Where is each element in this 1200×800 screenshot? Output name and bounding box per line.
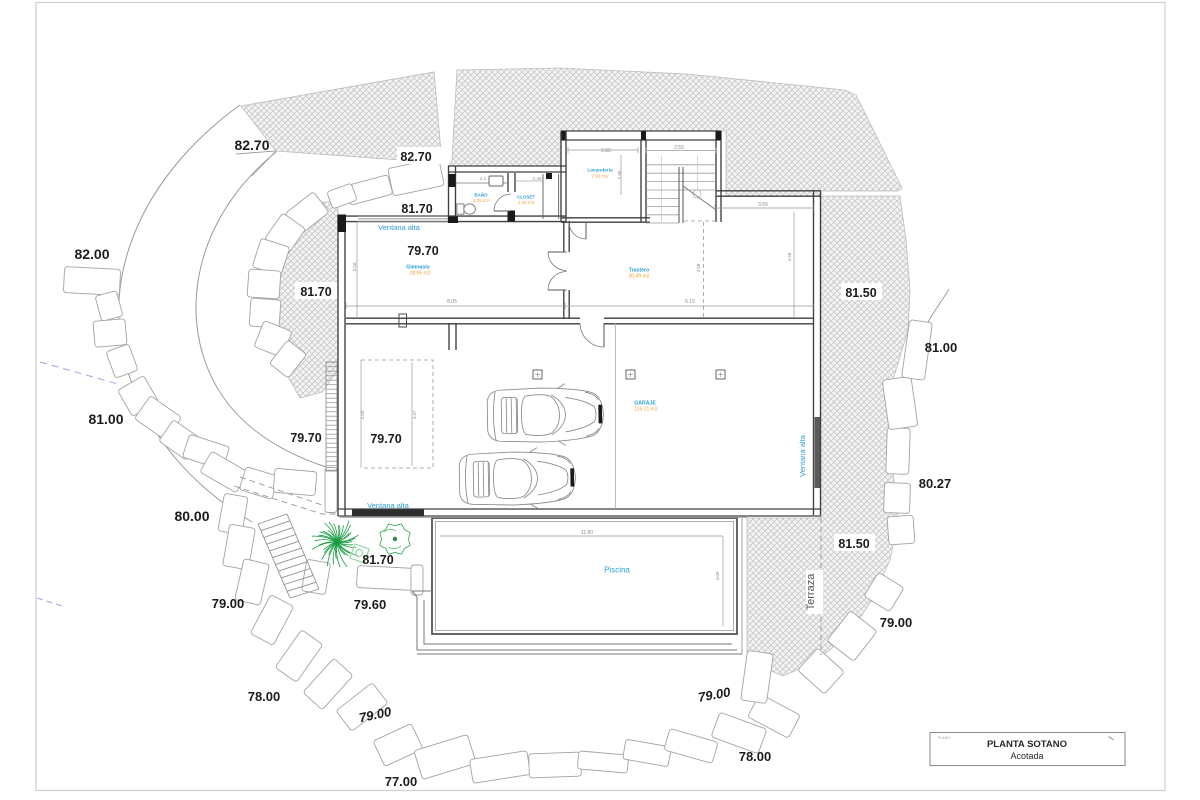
svg-text:Ventana alta: Ventana alta: [367, 501, 410, 510]
svg-text:Ventana alta: Ventana alta: [798, 434, 807, 477]
svg-text:4.00: 4.00: [360, 410, 365, 419]
svg-text:81.70: 81.70: [362, 553, 393, 567]
svg-text:Acotada: Acotada: [1010, 751, 1043, 761]
svg-text:79.70: 79.70: [407, 244, 438, 258]
svg-text:5.50: 5.50: [352, 262, 357, 271]
svg-text:8.05: 8.05: [447, 299, 457, 305]
svg-text:116.21 m2: 116.21 m2: [634, 407, 657, 413]
svg-text:1.40: 1.40: [533, 176, 542, 181]
svg-text:4.00: 4.00: [715, 571, 720, 580]
svg-text:77.00: 77.00: [385, 774, 418, 789]
svg-text:BAÑO: BAÑO: [474, 192, 488, 198]
svg-text:CLOSET: CLOSET: [517, 195, 536, 200]
svg-text:81.50: 81.50: [845, 286, 876, 300]
svg-text:30.49 m2: 30.49 m2: [629, 274, 650, 280]
svg-text:2.95: 2.95: [617, 170, 622, 179]
svg-text:2.1: 2.1: [480, 176, 487, 181]
svg-text:11.80: 11.80: [581, 530, 593, 536]
svg-text:78.00: 78.00: [248, 689, 281, 704]
svg-text:79.00: 79.00: [880, 615, 913, 630]
svg-text:81.00: 81.00: [925, 340, 958, 355]
svg-text:79.00: 79.00: [212, 596, 245, 611]
svg-text:80.27: 80.27: [919, 476, 952, 491]
svg-text:Ventana alta: Ventana alta: [378, 223, 421, 232]
svg-text:7.91 m2: 7.91 m2: [591, 174, 609, 180]
svg-text:4.47: 4.47: [412, 410, 417, 419]
svg-text:79.60: 79.60: [354, 597, 387, 612]
svg-text:Piscina: Piscina: [604, 566, 630, 575]
svg-text:81.70: 81.70: [300, 285, 331, 299]
svg-text:4.25 m2: 4.25 m2: [473, 198, 490, 203]
svg-text:6.15: 6.15: [685, 299, 695, 305]
svg-text:81.00: 81.00: [88, 411, 123, 427]
svg-text:4.58: 4.58: [787, 252, 792, 261]
svg-text:81.50: 81.50: [838, 537, 869, 551]
svg-text:2.65: 2.65: [601, 148, 611, 154]
svg-text:3.58: 3.58: [696, 263, 701, 272]
svg-text:2.55: 2.55: [674, 145, 684, 151]
svg-text:3.65: 3.65: [758, 202, 768, 208]
svg-text:79.70: 79.70: [370, 432, 401, 446]
svg-text:Terraza: Terraza: [805, 573, 817, 611]
svg-text:78.00: 78.00: [739, 749, 772, 764]
svg-text:80.00: 80.00: [174, 508, 209, 524]
svg-text:82.00: 82.00: [74, 246, 109, 262]
svg-text:Lavandería: Lavandería: [587, 168, 613, 174]
svg-text:2.60 m2: 2.60 m2: [518, 200, 535, 205]
svg-text:PLANO: PLANO: [938, 736, 950, 740]
svg-text:28.65 m2: 28.65 m2: [410, 271, 431, 277]
svg-text:79.70: 79.70: [290, 431, 321, 445]
svg-text:PLANTA SOTANO: PLANTA SOTANO: [987, 739, 1067, 750]
svg-text:81.70: 81.70: [401, 202, 432, 216]
svg-text:82.70: 82.70: [400, 150, 431, 164]
svg-text:82.70: 82.70: [234, 137, 269, 153]
